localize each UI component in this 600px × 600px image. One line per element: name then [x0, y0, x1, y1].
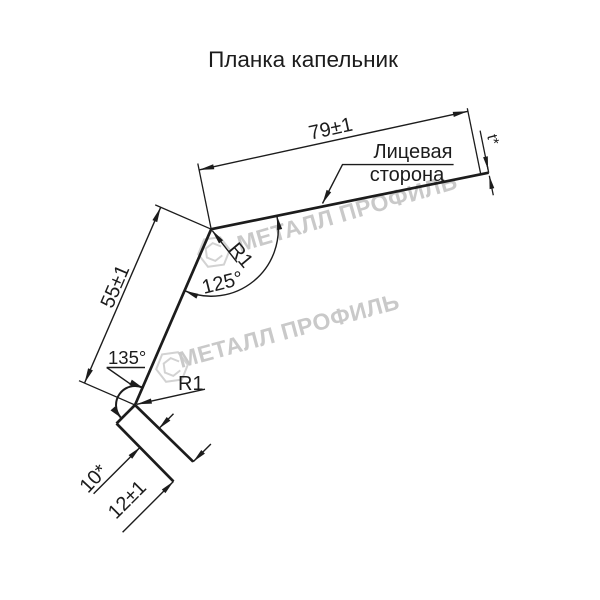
svg-text:сторона: сторона — [370, 164, 445, 186]
svg-text:Планка капельник: Планка капельник — [208, 47, 398, 72]
svg-text:Лицевая: Лицевая — [373, 141, 452, 163]
svg-text:135°: 135° — [108, 347, 146, 368]
svg-text:R1: R1 — [178, 373, 204, 395]
